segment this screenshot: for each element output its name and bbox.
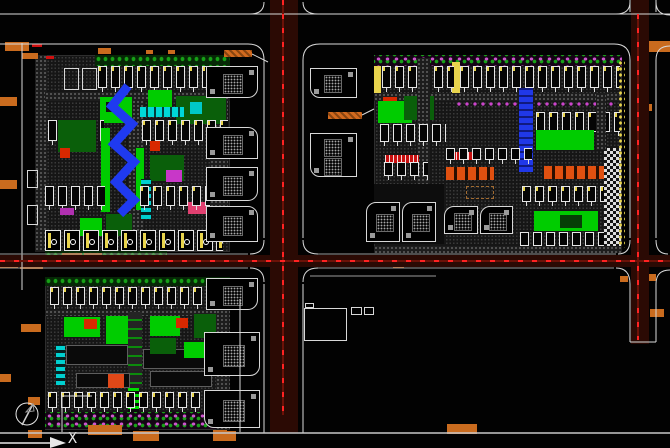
outline-building	[206, 278, 258, 310]
road-marker	[146, 50, 153, 54]
outline-building	[204, 332, 260, 376]
housing-row	[45, 186, 105, 210]
housing-unit	[486, 66, 495, 92]
hatch-square	[223, 400, 245, 422]
cyandash-feature	[56, 345, 65, 385]
housing-unit	[181, 120, 190, 145]
outline-feature	[82, 68, 97, 90]
housing-unit	[395, 66, 404, 92]
color-patch	[106, 102, 116, 112]
north-arrow-icon	[16, 403, 38, 425]
road-marker	[0, 180, 17, 189]
housing-unit	[137, 66, 146, 92]
road-marker	[646, 274, 656, 281]
housing-unit	[408, 66, 417, 92]
lawn-feature	[536, 130, 594, 150]
entrance-chip	[249, 282, 254, 287]
road-marker	[620, 276, 628, 282]
rowhouse-unit	[83, 230, 99, 251]
hatch-square	[376, 214, 394, 232]
housing-unit	[100, 392, 109, 412]
housing-unit	[176, 66, 185, 92]
outline-shape	[304, 308, 347, 341]
road-marker	[21, 324, 41, 332]
housing-unit	[87, 392, 96, 412]
housing-unit	[577, 66, 586, 92]
outline-building	[310, 68, 357, 98]
entrance-chip	[208, 367, 213, 372]
entrance-chip	[391, 206, 396, 211]
outline-shape	[305, 303, 314, 308]
road-marker	[447, 424, 477, 434]
housing-unit	[485, 148, 494, 164]
housing-unit	[180, 287, 189, 309]
housing-unit	[447, 66, 454, 92]
housing-unit	[561, 186, 570, 206]
housing-unit	[524, 148, 532, 164]
entrance-chip	[251, 394, 256, 399]
north-needle	[22, 404, 33, 425]
ucs-x-axis-label: X	[68, 429, 77, 447]
housing-unit	[178, 392, 187, 412]
housing-unit	[89, 287, 98, 309]
road-marker	[0, 97, 17, 106]
outline-building	[402, 202, 436, 242]
housing-unit	[603, 66, 612, 92]
rowhouse-unit	[102, 230, 118, 251]
trees-feature	[95, 55, 230, 66]
entrance-chip	[249, 131, 254, 136]
trees2-feature	[45, 412, 230, 429]
road-marker	[637, 210, 644, 221]
hatch-square	[454, 213, 472, 231]
outline-feature	[64, 68, 79, 90]
road-marker	[614, 258, 624, 267]
hatch-square	[324, 139, 342, 157]
entrance-chip	[249, 70, 254, 75]
entrance-chip	[348, 137, 353, 142]
lawn-feature	[100, 97, 132, 123]
housing-unit	[58, 186, 67, 210]
housing-unit	[128, 287, 137, 309]
road-marker	[636, 104, 652, 111]
housing-unit	[179, 186, 188, 210]
road-marker	[168, 50, 175, 54]
housing-unit	[167, 287, 176, 309]
housing-unit	[419, 124, 428, 146]
road-marker	[273, 167, 283, 178]
entrance-chip	[249, 171, 254, 176]
road-marker	[28, 397, 40, 405]
housing-unit	[522, 186, 531, 206]
entrance-chip	[251, 336, 256, 341]
hatch-square	[223, 135, 243, 155]
housing-unit	[393, 124, 402, 146]
housing-unit	[192, 186, 201, 210]
housing-unit	[384, 162, 393, 180]
rowhouse-unit	[45, 230, 61, 251]
housing-unit	[63, 287, 72, 309]
rowhouse-unit	[121, 230, 137, 251]
housing-unit	[152, 392, 161, 412]
entrance-chip	[370, 233, 375, 238]
entrance-chip	[427, 206, 432, 211]
housing-unit	[74, 392, 83, 412]
housing-unit	[50, 287, 59, 309]
label-leader-line	[362, 109, 374, 115]
parking-outline	[466, 186, 494, 199]
dgreen-feature	[150, 338, 176, 354]
rowhouse-unit	[64, 230, 80, 251]
housing-unit	[97, 186, 105, 210]
road-marker	[133, 431, 159, 441]
oblocks-feature	[446, 167, 494, 180]
color-patch	[60, 208, 74, 215]
housing-unit	[434, 66, 443, 92]
outline-shape	[351, 307, 362, 315]
housing-unit	[71, 186, 80, 210]
housing-unit	[163, 66, 172, 92]
hatch-square	[223, 216, 243, 236]
road-corner-curve	[656, 2, 670, 15]
road-corner-curve	[303, 240, 318, 254]
road-marker	[393, 259, 404, 268]
hatch-square	[223, 176, 243, 196]
trees2-feature	[374, 55, 622, 66]
housing-unit	[140, 186, 149, 210]
road-marker	[466, 259, 476, 266]
housing-row	[140, 186, 210, 210]
housing-unit	[446, 148, 455, 164]
housing-row	[50, 287, 222, 309]
road-marker	[224, 50, 252, 57]
housing-unit	[590, 66, 599, 92]
outline-building	[206, 167, 258, 201]
entrance-chip	[210, 150, 215, 155]
housing-unit	[432, 124, 441, 146]
road-corner-curve	[303, 2, 318, 14]
color-patch	[108, 374, 124, 388]
red-annotation-mark	[640, 71, 648, 75]
housing-row	[384, 162, 428, 180]
road-marker	[84, 253, 102, 265]
housing-row	[522, 186, 606, 206]
road-marker	[650, 309, 664, 317]
housing-unit	[511, 148, 520, 164]
outline-building	[480, 206, 513, 234]
red-annotation-mark	[46, 56, 54, 59]
housing-unit	[166, 186, 175, 210]
entrance-chip	[210, 192, 215, 197]
hatch-square	[324, 75, 342, 93]
entrance-chip	[314, 89, 319, 94]
road-corner-curve	[303, 44, 320, 60]
oblocks-feature	[544, 166, 606, 179]
road-marker	[0, 374, 11, 382]
outline-building	[206, 66, 258, 98]
entrance-chip	[348, 72, 353, 77]
hatch-square	[489, 213, 507, 231]
housing-unit	[111, 66, 120, 92]
housing-unit	[61, 392, 70, 412]
hatch-square	[223, 345, 245, 367]
road-marker	[88, 425, 122, 435]
entrance-chip	[208, 419, 213, 424]
housing-unit	[76, 287, 85, 309]
entrance-chip	[406, 233, 411, 238]
housing-unit	[98, 66, 107, 92]
housing-unit	[460, 66, 469, 92]
housing-row	[460, 66, 620, 92]
road-marker	[62, 253, 82, 266]
ucs-arrowhead-icon	[50, 437, 66, 448]
road-marker	[20, 257, 43, 269]
road-corner-curve	[250, 240, 264, 254]
entrance-chip	[484, 225, 489, 230]
housing-unit	[84, 186, 93, 210]
road-marker	[108, 255, 122, 266]
hatch-square	[223, 286, 243, 306]
housing-unit	[193, 287, 202, 309]
road-corner-curve	[656, 240, 668, 254]
outline-building	[444, 206, 478, 234]
housing-unit	[115, 287, 124, 309]
housing-unit	[410, 162, 419, 180]
color-patch	[60, 148, 70, 158]
entrance-chip	[469, 210, 474, 215]
housing-unit	[194, 120, 203, 145]
road-marker	[22, 53, 38, 59]
label-leader-line	[252, 54, 268, 62]
road-corner-curve	[616, 2, 630, 14]
hatch-square	[324, 158, 342, 176]
road-marker	[28, 430, 42, 438]
road-marker	[275, 75, 284, 83]
housing-unit	[139, 392, 148, 412]
color-patch	[166, 170, 182, 182]
housing-unit	[141, 287, 150, 309]
road-corner-curve	[250, 2, 264, 14]
pool-feature	[140, 107, 184, 117]
housing-unit	[113, 392, 122, 412]
color-patch	[560, 215, 582, 228]
housing-unit	[165, 392, 174, 412]
housing-unit	[45, 186, 54, 210]
north-needle-head	[26, 404, 34, 412]
housing-unit	[48, 392, 57, 412]
housing-unit	[397, 162, 406, 180]
color-patch	[176, 318, 188, 328]
outline-shape	[364, 307, 374, 315]
housing-unit	[548, 186, 557, 206]
housing-unit	[124, 66, 133, 92]
vpath-feature	[596, 94, 606, 150]
road-marker	[638, 41, 670, 52]
outline-building	[206, 127, 258, 159]
rowhouse-unit	[140, 230, 156, 251]
housing-row	[446, 148, 532, 164]
housing-row	[380, 124, 446, 146]
housing-unit	[587, 186, 596, 206]
chev-feature	[128, 312, 142, 388]
housing-unit	[126, 392, 135, 412]
hpath-feature	[374, 246, 622, 253]
housing-unit	[48, 120, 57, 145]
housing-unit	[564, 66, 573, 92]
housing-unit	[380, 124, 389, 146]
housing-unit	[382, 66, 391, 92]
housing-unit	[423, 162, 428, 180]
color-patch	[150, 141, 160, 151]
rowhouse-unit	[159, 230, 175, 251]
road-marker	[276, 221, 285, 231]
outline-building	[204, 390, 260, 428]
entrance-chip	[448, 225, 453, 230]
outline-building	[366, 202, 400, 242]
outline-building	[206, 206, 258, 242]
housing-unit	[538, 66, 547, 92]
housing-unit	[153, 186, 162, 210]
housing-unit	[459, 148, 468, 164]
darkb-feature	[150, 371, 212, 387]
outline-building	[310, 133, 357, 177]
housing-unit	[574, 186, 583, 206]
road-corner-curve	[656, 270, 670, 284]
road-marker	[0, 255, 18, 268]
housing-unit	[551, 66, 560, 92]
road-corner-curve	[303, 268, 318, 282]
red-annotation-mark	[32, 44, 42, 47]
ydots-feature	[618, 60, 625, 248]
housing-unit	[535, 186, 544, 206]
road-marker	[328, 112, 362, 119]
housing-unit	[445, 124, 446, 146]
housing-unit	[150, 66, 159, 92]
road-marker	[98, 48, 111, 54]
outline-shape	[27, 205, 38, 225]
housing-unit	[191, 392, 200, 412]
entrance-chip	[249, 210, 254, 215]
trees-feature	[45, 277, 230, 286]
entrance-chip	[504, 210, 509, 215]
rowhouse-unit	[178, 230, 194, 251]
outline-shape	[27, 170, 38, 188]
housing-unit	[154, 287, 163, 309]
housing-unit	[499, 66, 508, 92]
housing-unit	[498, 148, 507, 164]
road-surface	[270, 0, 298, 433]
housing-unit	[472, 148, 481, 164]
cad-viewport[interactable]: X	[0, 0, 670, 448]
entrance-chip	[210, 301, 215, 306]
housing-unit	[168, 120, 177, 145]
entrance-chip	[210, 89, 215, 94]
housing-row	[48, 392, 218, 412]
road-marker	[5, 42, 29, 51]
hatch-square	[223, 74, 243, 94]
entrance-chip	[314, 168, 319, 173]
housing-unit	[189, 66, 198, 92]
rowhouse-band	[45, 230, 223, 251]
road-marker	[223, 431, 236, 441]
housing-unit	[406, 124, 415, 146]
darkb-feature	[66, 345, 128, 365]
hatch-square	[412, 214, 430, 232]
color-patch	[374, 66, 381, 96]
housing-unit	[102, 287, 111, 309]
entrance-chip	[210, 233, 215, 238]
color-patch	[84, 319, 97, 329]
mdots-feature	[455, 100, 617, 109]
color-patch	[190, 102, 202, 114]
housing-unit	[473, 66, 482, 92]
